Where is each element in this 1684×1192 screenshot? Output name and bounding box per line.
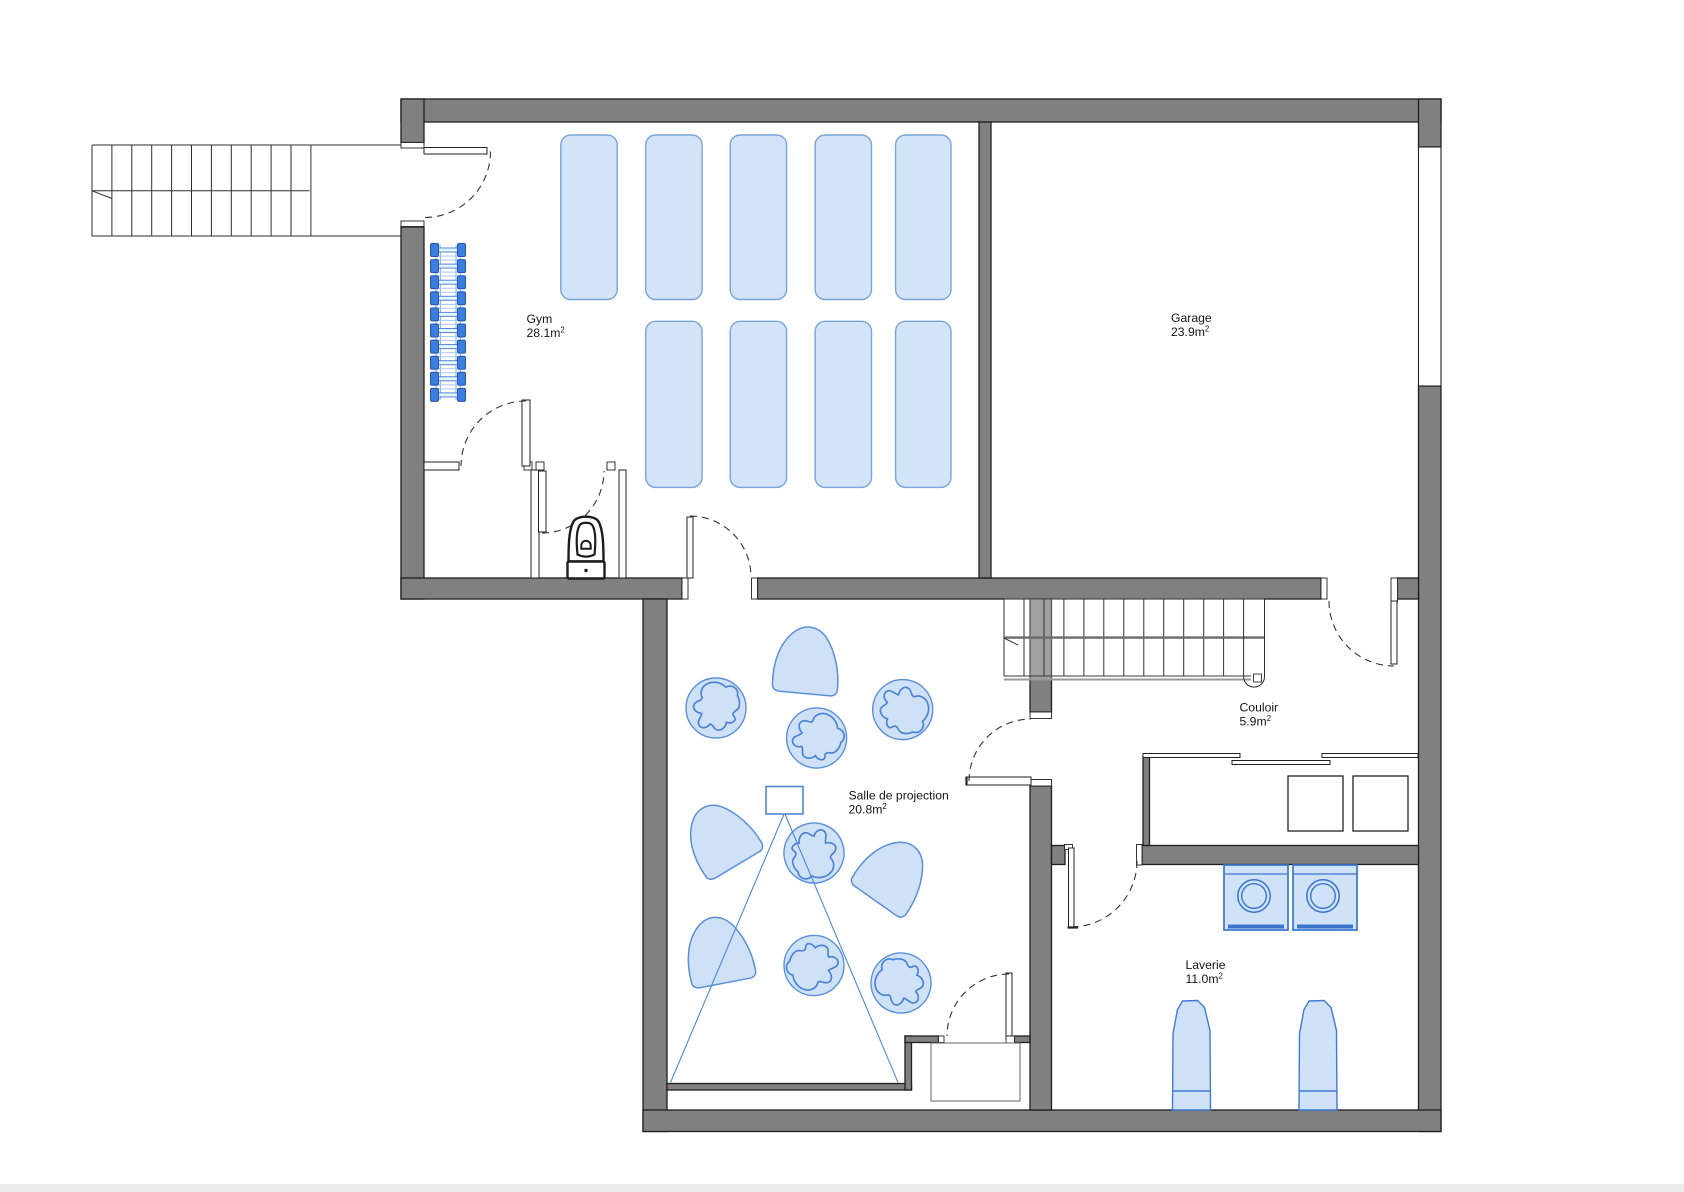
- svg-text:28.1m2: 28.1m2: [527, 326, 565, 340]
- svg-text:Gym: Gym: [527, 312, 553, 326]
- svg-text:20.8m2: 20.8m2: [849, 802, 887, 816]
- svg-text:11.0m2: 11.0m2: [1186, 972, 1223, 986]
- svg-text:Couloir: Couloir: [1240, 701, 1279, 715]
- svg-text:23.9m2: 23.9m2: [1171, 325, 1209, 339]
- svg-text:Salle de projection: Salle de projection: [849, 789, 949, 803]
- svg-text:Garage: Garage: [1171, 311, 1212, 325]
- svg-text:5.9m2: 5.9m2: [1240, 714, 1272, 728]
- svg-text:Laverie: Laverie: [1186, 958, 1226, 972]
